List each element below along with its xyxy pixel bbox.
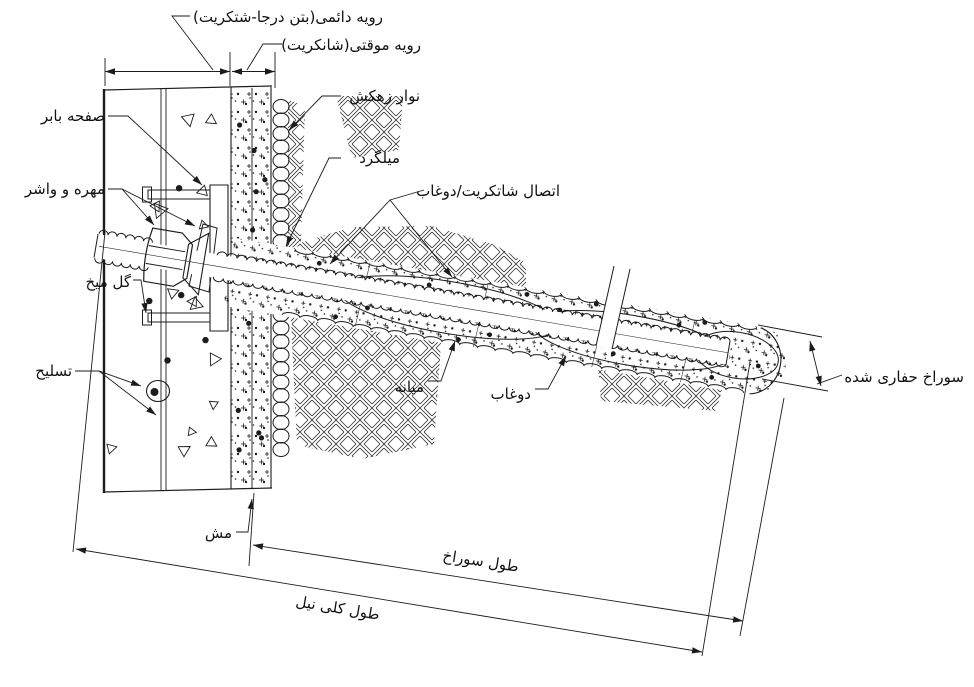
label-headed-stud: گل میخ (85, 273, 131, 291)
label-drainage-strip: نوار زهکش (349, 87, 420, 105)
shotcrete-dot (237, 447, 242, 452)
drainage-loop (273, 389, 289, 403)
drainage-loop (273, 429, 289, 443)
aggregate-dot (178, 292, 184, 298)
shotcrete-dot (251, 148, 256, 153)
label-mesh: مش (205, 524, 232, 542)
aggregate-dot (202, 337, 208, 343)
label-nut-and-washer: مهره و واشر (24, 180, 105, 198)
drainage-loop (273, 208, 289, 222)
drainage-loop (273, 100, 289, 114)
drainage-loop (273, 443, 289, 457)
drainage-loop (273, 362, 289, 376)
aggregate-dot (146, 298, 152, 304)
aggregate-dot (164, 357, 170, 363)
label-hole-length: طول سوراخ (441, 546, 520, 576)
shotcrete-dot (246, 321, 251, 326)
dim-hole-diameter (810, 341, 821, 386)
drainage-loop (273, 113, 289, 127)
label-reinforcement: تسلیح (35, 362, 72, 380)
drawing-sheet: رویه دائمی(بتن درجا-شتکریت) رویه موقتی(ش… (0, 0, 974, 687)
drainage-loop (273, 181, 289, 195)
shotcrete-dot (250, 227, 255, 232)
shotcrete-dot (259, 435, 264, 440)
label-drilled-hole: سوراخ حفاری شده (844, 368, 964, 386)
drainage-loop (273, 402, 289, 416)
diagram-canvas: رویه دائمی(بتن درجا-شتکریت) رویه موقتی(ش… (0, 0, 974, 687)
label-bearing-plate: صفحه بابر (40, 107, 105, 125)
drainage-loop (273, 321, 289, 335)
drainage-loop (273, 335, 289, 349)
drainage-loop (273, 416, 289, 430)
extension-line (740, 398, 784, 636)
shotcrete-dot (256, 430, 261, 435)
drainage-loop (273, 194, 289, 208)
label-centralizer: میانه (395, 378, 424, 396)
drainage-loop (273, 348, 289, 362)
drainage-loop (273, 167, 289, 181)
label-temporary-facing: رویه موقتی(شانکریت) (281, 36, 421, 54)
rebar-dot (151, 388, 159, 396)
label-rebar: میلگرد (359, 149, 400, 167)
shotcrete-dot (236, 408, 241, 413)
drainage-loop (273, 127, 289, 141)
drainage-loop (273, 375, 289, 389)
label-permanent-facing: رویه دائمی(بتن درجا-شتکریت) (193, 8, 383, 26)
drainage-loop (273, 221, 289, 235)
shotcrete-dot (237, 122, 242, 127)
drainage-loop (273, 140, 289, 154)
label-grout: دوغاب (491, 385, 531, 403)
shotcrete-dot (262, 177, 267, 182)
label-shotcrete-grout-connection: اتصال شاتکریت/دوغاب (416, 182, 560, 200)
drainage-loop (273, 154, 289, 168)
shotcrete-dot (254, 189, 259, 194)
